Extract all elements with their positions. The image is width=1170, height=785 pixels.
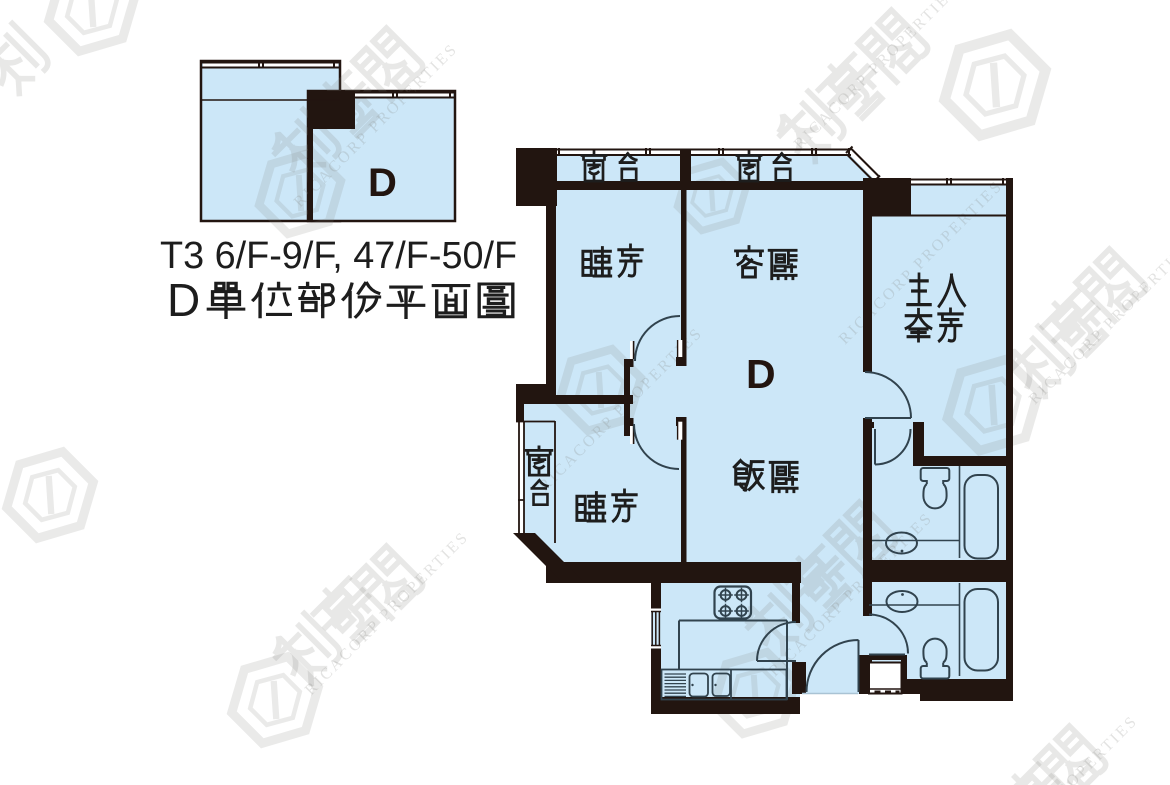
svg-text:D: D [167,274,200,326]
svg-text:D: D [746,351,776,397]
svg-text:D: D [368,161,397,205]
svg-text:T3 6/F-9/F, 47/F-50/F: T3 6/F-9/F, 47/F-50/F [160,235,517,277]
